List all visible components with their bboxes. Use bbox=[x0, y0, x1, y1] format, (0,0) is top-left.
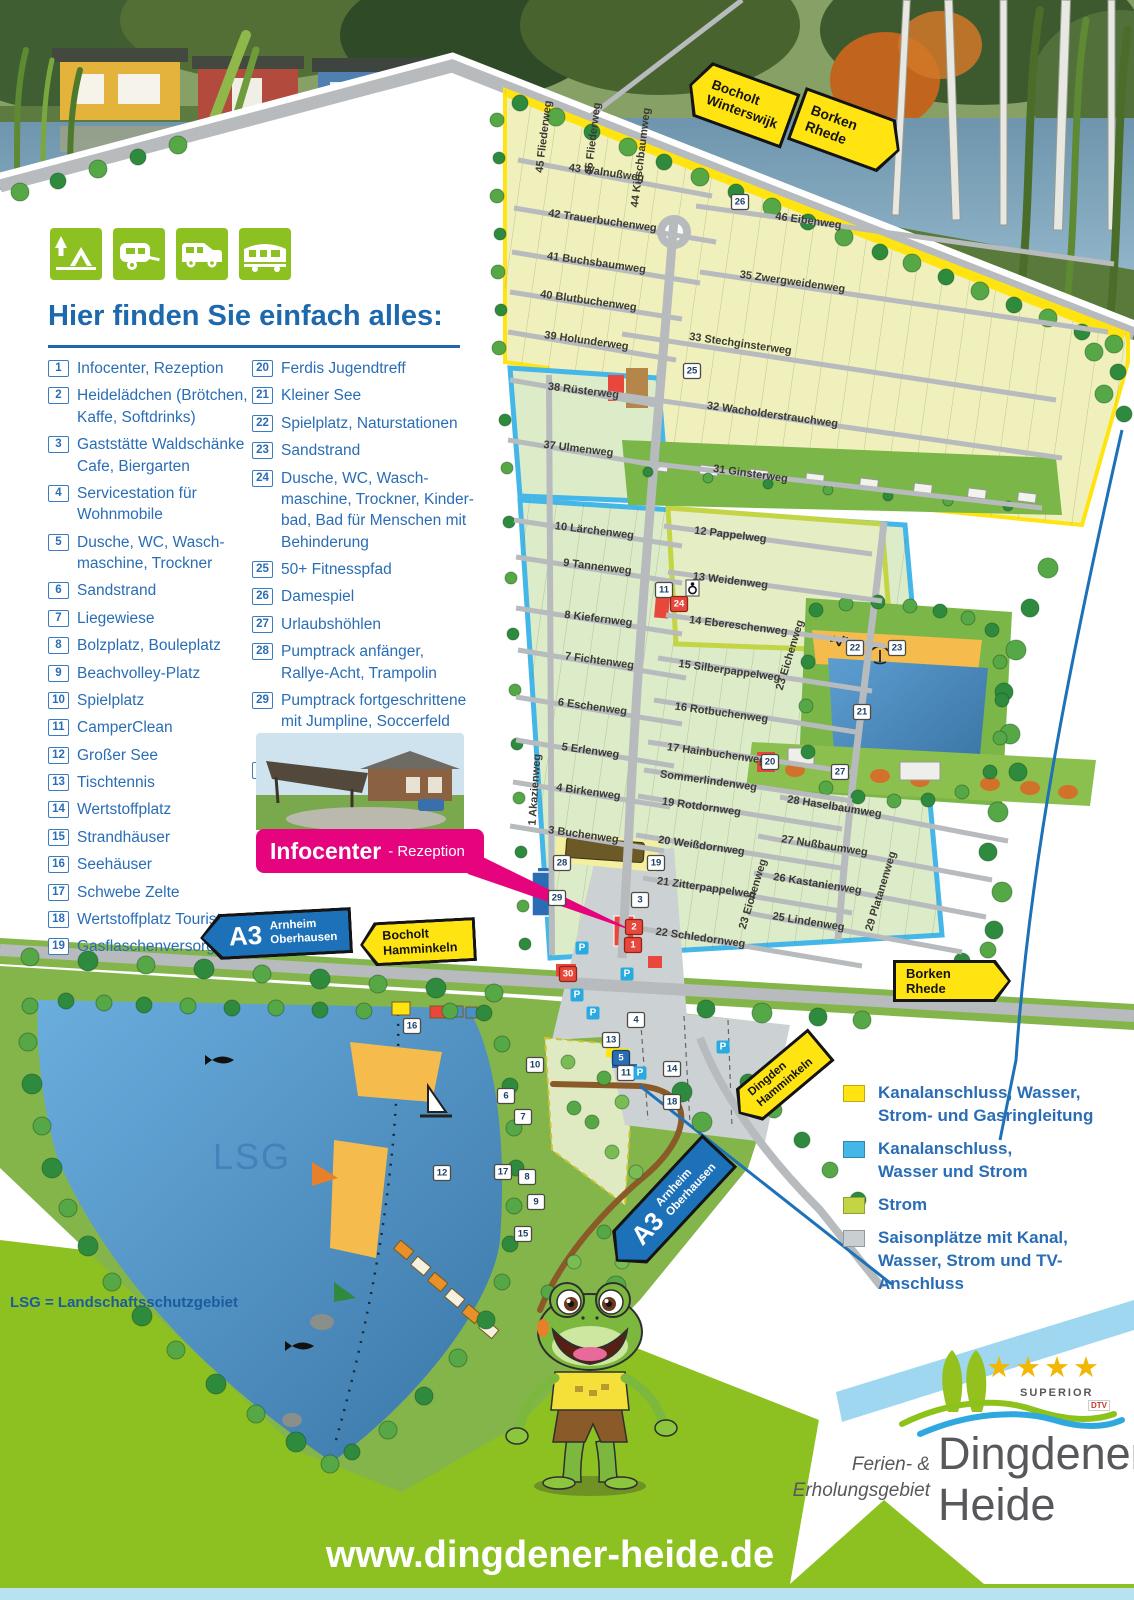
tree bbox=[629, 1165, 643, 1179]
legend-item-label: Damespiel bbox=[281, 586, 354, 607]
tree bbox=[379, 1421, 397, 1439]
tree bbox=[491, 265, 505, 279]
tree bbox=[1110, 364, 1126, 380]
legend-item-label: Ferdis Jugendtreff bbox=[281, 358, 406, 379]
tree bbox=[442, 1003, 458, 1019]
legend-item-number: 7 bbox=[48, 610, 69, 627]
tree bbox=[493, 152, 505, 164]
map-marker-17: 17 bbox=[495, 1165, 512, 1180]
legend-item-label: CamperClean bbox=[77, 717, 173, 738]
tree bbox=[485, 984, 503, 1002]
tree bbox=[505, 572, 517, 584]
tree bbox=[903, 599, 917, 613]
legend-item: 13Tischtennis bbox=[48, 772, 253, 793]
tree bbox=[509, 684, 521, 696]
tree bbox=[33, 1117, 51, 1135]
tree bbox=[494, 1036, 510, 1052]
tree bbox=[643, 467, 653, 477]
legend-item: 10Spielplatz bbox=[48, 690, 253, 711]
tree bbox=[286, 1432, 306, 1452]
legend-column-left: 1Infocenter, Rezeption2Heidelädchen (Brö… bbox=[48, 358, 253, 958]
map-marker-26: 26 bbox=[732, 195, 749, 210]
legend-item-label: Bolzplatz, Bouleplatz bbox=[77, 635, 221, 656]
legend-item-label: Dusche, WC, Wasch- maschine, Trockner bbox=[77, 532, 225, 575]
svg-text:P: P bbox=[624, 969, 631, 980]
legend-item-label: Schwebe Zelte bbox=[77, 882, 180, 903]
legend-item-label: Gaststätte Waldschänke Cafe, Biergarten bbox=[77, 434, 244, 477]
map-marker-11: 11 bbox=[618, 1066, 635, 1081]
infocenter-sublabel: - Rezeption bbox=[388, 843, 465, 860]
legend-item-label: Liegewiese bbox=[77, 608, 155, 629]
tree bbox=[597, 1071, 611, 1085]
logo-name-line1: Dingdener bbox=[938, 1428, 1134, 1480]
lake-lsg-label: LSG bbox=[213, 1136, 291, 1178]
parking-marker: P bbox=[717, 1041, 730, 1054]
tree bbox=[426, 978, 446, 998]
svg-text:5: 5 bbox=[618, 1053, 624, 1064]
map-marker-27: 27 bbox=[832, 765, 849, 780]
map-marker-12: 12 bbox=[434, 1166, 451, 1181]
tree bbox=[619, 138, 637, 156]
legend-item-number: 17 bbox=[48, 884, 69, 901]
tree bbox=[492, 341, 506, 355]
svg-text:19: 19 bbox=[651, 858, 662, 869]
infocenter-callout: Infocenter - Rezeption bbox=[256, 829, 484, 873]
legend-item: 26Damespiel bbox=[252, 586, 482, 607]
svg-text:P: P bbox=[590, 1008, 597, 1019]
legend-item-number: 15 bbox=[48, 829, 69, 846]
legend-item: 9Beachvolley-Platz bbox=[48, 663, 253, 684]
map-marker-11: 11 bbox=[656, 583, 673, 598]
svg-text:11: 11 bbox=[621, 1068, 632, 1079]
tree bbox=[567, 1101, 581, 1115]
tree bbox=[253, 965, 271, 983]
parking-marker: P bbox=[571, 989, 584, 1002]
legend-item-number: 2 bbox=[48, 387, 69, 404]
svg-text:10: 10 bbox=[530, 1060, 541, 1071]
tree bbox=[449, 1349, 467, 1367]
tree bbox=[96, 995, 112, 1011]
pitch-legend-label: Strom bbox=[878, 1194, 927, 1217]
svg-text:3: 3 bbox=[637, 895, 642, 906]
tree bbox=[356, 1003, 372, 1019]
legend-item-number: 3 bbox=[48, 436, 69, 453]
tree bbox=[903, 254, 921, 272]
pitch-type-legend: Kanalanschluss, Wasser, Strom- und Gasri… bbox=[843, 1082, 1134, 1296]
map-marker-25: 25 bbox=[684, 364, 701, 379]
legend-item-number: 10 bbox=[48, 692, 69, 709]
tree bbox=[512, 95, 528, 111]
tree bbox=[961, 611, 975, 625]
tree bbox=[605, 1145, 619, 1159]
tree bbox=[312, 1002, 328, 1018]
svg-text:29: 29 bbox=[552, 893, 563, 904]
tree bbox=[517, 900, 529, 912]
tree bbox=[519, 938, 531, 950]
tree bbox=[993, 655, 1007, 669]
tree bbox=[985, 623, 999, 637]
tree bbox=[50, 173, 66, 189]
tree bbox=[809, 603, 823, 617]
svg-text:26: 26 bbox=[735, 197, 746, 208]
tree bbox=[983, 765, 997, 779]
legend-item-number: 6 bbox=[48, 582, 69, 599]
tree bbox=[853, 1011, 871, 1029]
tree bbox=[1006, 640, 1026, 660]
tree bbox=[268, 1000, 284, 1016]
road-sign-a3-west: A3 ArnheimOberhausen bbox=[199, 907, 353, 961]
map-marker-29: 29 bbox=[549, 891, 566, 906]
parking-marker: P bbox=[621, 968, 634, 981]
tree bbox=[992, 882, 1012, 902]
tree bbox=[22, 998, 38, 1014]
legend-item: 27Urlaubshöhlen bbox=[252, 614, 482, 635]
map-marker-18: 18 bbox=[664, 1095, 681, 1110]
tree bbox=[415, 1387, 433, 1405]
legend-item-number: 28 bbox=[252, 643, 273, 660]
pitch-legend-label: Saisonplätze mit Kanal, Wasser, Strom un… bbox=[878, 1227, 1134, 1296]
tree bbox=[506, 1198, 522, 1214]
tree bbox=[1038, 558, 1058, 578]
svg-text:12: 12 bbox=[437, 1168, 448, 1179]
tree bbox=[794, 1132, 810, 1148]
legend-item-number: 26 bbox=[252, 588, 273, 605]
legend-item: 28Pumptrack anfänger, Rallye-Acht, Tramp… bbox=[252, 641, 482, 684]
legend-item-number: 13 bbox=[48, 774, 69, 791]
legend-item-number: 19 bbox=[48, 938, 69, 955]
legend-item-label: Spielplatz, Naturstationen bbox=[281, 413, 458, 434]
pitch-legend-label: Kanalanschluss, Wasser und Strom bbox=[878, 1138, 1028, 1184]
tree bbox=[59, 1199, 77, 1217]
tree bbox=[921, 793, 935, 807]
logo-stars: ★★★★ bbox=[986, 1350, 1102, 1385]
map-marker-23: 23 bbox=[889, 641, 906, 656]
pitch-legend-swatch bbox=[843, 1141, 865, 1158]
tree bbox=[501, 462, 513, 474]
svg-text:7: 7 bbox=[520, 1112, 525, 1123]
legend-item-label: Beachvolley-Platz bbox=[77, 663, 200, 684]
tree bbox=[490, 113, 504, 127]
tree bbox=[752, 1003, 772, 1023]
tree bbox=[801, 655, 815, 669]
pitch-legend-item: Kanalanschluss, Wasser, Strom- und Gasri… bbox=[843, 1082, 1134, 1128]
legend-item-label: Sandstrand bbox=[281, 440, 360, 461]
legend-item: 1Infocenter, Rezeption bbox=[48, 358, 253, 379]
legend-divider bbox=[48, 345, 460, 348]
legend-title: Hier finden Sie einfach alles: bbox=[48, 300, 478, 333]
map-marker-28: 28 bbox=[554, 856, 571, 871]
legend-item: 21Kleiner See bbox=[252, 385, 482, 406]
tree bbox=[247, 1405, 265, 1423]
tree bbox=[692, 1112, 712, 1132]
tree bbox=[691, 168, 709, 186]
tree bbox=[1085, 343, 1103, 361]
legend-item: 22Spielplatz, Naturstationen bbox=[252, 413, 482, 434]
map-marker-20: 20 bbox=[762, 755, 779, 770]
tree bbox=[321, 1455, 339, 1473]
pitch-legend-swatch bbox=[843, 1197, 865, 1214]
parking-marker: P bbox=[587, 1007, 600, 1020]
tree bbox=[477, 1311, 495, 1329]
tree bbox=[1105, 335, 1123, 353]
wheelchair-icon bbox=[686, 580, 699, 596]
legend-item: 20Ferdis Jugendtreff bbox=[252, 358, 482, 379]
legend-item-number: 1 bbox=[48, 360, 69, 377]
legend-item-label: Dusche, WC, Wasch- maschine, Trockner, K… bbox=[281, 468, 474, 554]
tree bbox=[490, 189, 504, 203]
tree bbox=[851, 790, 865, 804]
svg-text:20: 20 bbox=[765, 757, 776, 768]
legend-item: 11CamperClean bbox=[48, 717, 253, 738]
legend-item-number: 20 bbox=[252, 360, 273, 377]
legend-item-number: 5 bbox=[48, 534, 69, 551]
legend-item-number: 12 bbox=[48, 747, 69, 764]
campsite-map-poster: 45 Fliederweg45 Fliederweg44 Kirschbaumw… bbox=[0, 0, 1134, 1600]
tree bbox=[344, 1444, 360, 1460]
tree bbox=[809, 1008, 827, 1026]
tree bbox=[1009, 763, 1027, 781]
legend-item-number: 8 bbox=[48, 637, 69, 654]
accommodation-icons bbox=[50, 228, 291, 280]
url-banner[interactable]: www.dingdener-heide.de bbox=[0, 1534, 1100, 1577]
map-marker-19: 19 bbox=[648, 856, 665, 871]
road-sign-bocholt-hamminkeln: BocholtHamminkeln bbox=[359, 917, 477, 967]
parking-marker: P bbox=[576, 942, 589, 955]
legend-item: 24Dusche, WC, Wasch- maschine, Trockner,… bbox=[252, 468, 482, 554]
svg-text:18: 18 bbox=[667, 1097, 678, 1108]
tree bbox=[1116, 406, 1132, 422]
svg-text:P: P bbox=[720, 1042, 727, 1053]
map-marker-1: 1 bbox=[625, 938, 642, 953]
map-marker-7: 7 bbox=[515, 1110, 532, 1125]
tree bbox=[1006, 297, 1022, 313]
footer-strip bbox=[0, 1588, 1134, 1600]
legend-item-number: 29 bbox=[252, 692, 273, 709]
tree bbox=[933, 604, 947, 618]
map-marker-15: 15 bbox=[515, 1227, 532, 1242]
legend-item-number: 22 bbox=[252, 415, 273, 432]
legend-item-number: 25 bbox=[252, 561, 273, 578]
tree bbox=[58, 993, 74, 1009]
svg-text:27: 27 bbox=[835, 767, 846, 778]
map-marker-22: 22 bbox=[847, 641, 864, 656]
tree bbox=[819, 781, 833, 795]
svg-text:16: 16 bbox=[407, 1021, 418, 1032]
map-marker-2: 2 bbox=[626, 920, 643, 935]
legend-item-label: Strandhäuser bbox=[77, 827, 170, 848]
tree bbox=[369, 975, 387, 993]
tree bbox=[310, 969, 330, 989]
legend-item-label: Spielplatz bbox=[77, 690, 144, 711]
legend-item-number: 4 bbox=[48, 485, 69, 502]
tree bbox=[494, 1274, 510, 1290]
legend-item: 16Seehäuser bbox=[48, 854, 253, 875]
map-marker-9: 9 bbox=[528, 1195, 545, 1210]
tree bbox=[995, 693, 1009, 707]
legend-item: 23Sandstrand bbox=[252, 440, 482, 461]
tree bbox=[513, 792, 525, 804]
logo-name-line2: Heide bbox=[938, 1479, 1056, 1531]
tree bbox=[136, 997, 152, 1013]
legend-item: 17Schwebe Zelte bbox=[48, 882, 253, 903]
svg-text:15: 15 bbox=[518, 1229, 529, 1240]
svg-text:P: P bbox=[637, 1068, 644, 1079]
tree bbox=[988, 802, 1008, 822]
map-marker-5: 5 bbox=[613, 1051, 630, 1066]
legend-item: 5Dusche, WC, Wasch- maschine, Trockner bbox=[48, 532, 253, 575]
svg-text:8: 8 bbox=[524, 1172, 529, 1183]
tree bbox=[224, 1000, 240, 1016]
svg-text:P: P bbox=[574, 990, 581, 1001]
svg-text:2: 2 bbox=[631, 922, 636, 933]
map-marker-30: 30 bbox=[560, 967, 577, 982]
tree bbox=[194, 959, 214, 979]
parking-marker: P bbox=[634, 1067, 647, 1080]
tree bbox=[567, 1255, 581, 1269]
map-marker-3: 3 bbox=[632, 893, 649, 908]
tree bbox=[561, 1055, 575, 1069]
tree bbox=[499, 414, 511, 426]
tree bbox=[801, 745, 815, 759]
tree bbox=[971, 282, 989, 300]
legend-item-number: 24 bbox=[252, 470, 273, 487]
svg-text:14: 14 bbox=[667, 1064, 678, 1075]
svg-text:23: 23 bbox=[892, 643, 903, 654]
svg-text:13: 13 bbox=[606, 1035, 617, 1046]
legend-item: 3Gaststätte Waldschänke Cafe, Biergarten bbox=[48, 434, 253, 477]
tree bbox=[137, 956, 155, 974]
lsg-note: LSG = Landschaftsschutzgebiet bbox=[10, 1294, 238, 1311]
tree bbox=[515, 846, 527, 858]
camping-tent-icon bbox=[50, 228, 102, 280]
map-marker-21: 21 bbox=[854, 705, 871, 720]
tree bbox=[872, 244, 888, 260]
tree bbox=[169, 136, 187, 154]
tree bbox=[476, 1005, 492, 1021]
legend-item-label: Kleiner See bbox=[281, 385, 361, 406]
tree bbox=[585, 1115, 599, 1129]
map-marker-13: 13 bbox=[603, 1033, 620, 1048]
legend-item-number: 18 bbox=[48, 911, 69, 928]
legend-column-right: 20Ferdis Jugendtreff21Kleiner See22Spiel… bbox=[252, 358, 482, 781]
tree bbox=[103, 1273, 121, 1291]
tree bbox=[979, 843, 997, 861]
tree bbox=[494, 228, 506, 240]
legend-item-label: Urlaubshöhlen bbox=[281, 614, 381, 635]
tree bbox=[887, 794, 901, 808]
tree bbox=[180, 998, 196, 1014]
legend-item-label: Infocenter, Rezeption bbox=[77, 358, 224, 379]
road-sign-borken-rhede-bottom: BorkenRhede bbox=[893, 960, 1011, 1002]
legend-item-label: Servicestation für Wohnmobile bbox=[77, 483, 197, 526]
tree bbox=[1021, 599, 1039, 617]
map-marker-16: 16 bbox=[404, 1019, 421, 1034]
legend-item-number: 9 bbox=[48, 665, 69, 682]
tree bbox=[78, 1236, 98, 1256]
svg-text:21: 21 bbox=[857, 707, 868, 718]
legend-item-number: 11 bbox=[48, 719, 69, 736]
tree bbox=[955, 785, 969, 799]
pitch-legend-label: Kanalanschluss, Wasser, Strom- und Gasri… bbox=[878, 1082, 1093, 1128]
svg-text:28: 28 bbox=[557, 858, 568, 869]
tree bbox=[19, 1033, 37, 1051]
svg-text:25: 25 bbox=[687, 366, 698, 377]
legend-item-label: Pumptrack anfänger, Rallye-Acht, Trampol… bbox=[281, 641, 437, 684]
svg-text:6: 6 bbox=[503, 1091, 508, 1102]
legend-item-label: Sandstrand bbox=[77, 580, 156, 601]
svg-text:24: 24 bbox=[674, 599, 685, 610]
map-marker-8: 8 bbox=[519, 1170, 536, 1185]
tree bbox=[507, 628, 519, 640]
map-marker-4: 4 bbox=[628, 1013, 645, 1028]
tree bbox=[21, 948, 39, 966]
legend-item-number: 23 bbox=[252, 442, 273, 459]
mobile-home-icon bbox=[239, 228, 291, 280]
legend-item-number: 27 bbox=[252, 616, 273, 633]
pitch-legend-item: Kanalanschluss, Wasser und Strom bbox=[843, 1138, 1134, 1184]
legend-item-label: Tischtennis bbox=[77, 772, 155, 793]
legend-item: 15Strandhäuser bbox=[48, 827, 253, 848]
map-marker-10: 10 bbox=[527, 1058, 544, 1073]
svg-text:11: 11 bbox=[659, 585, 670, 596]
svg-text:1: 1 bbox=[630, 940, 636, 951]
legend-item-label: Heidelädchen (Brötchen, Kaffe, Softdrink… bbox=[77, 385, 248, 428]
tree bbox=[495, 304, 507, 316]
legend-item-number: 16 bbox=[48, 856, 69, 873]
tree bbox=[167, 1341, 185, 1359]
legend-item-label: Großer See bbox=[77, 745, 158, 766]
tree bbox=[985, 921, 1003, 939]
caravan-icon bbox=[113, 228, 165, 280]
motorhome-icon bbox=[176, 228, 228, 280]
tree bbox=[1095, 385, 1113, 403]
pitch-legend-item: Saisonplätze mit Kanal, Wasser, Strom un… bbox=[843, 1227, 1134, 1296]
tree bbox=[89, 160, 107, 178]
svg-text:9: 9 bbox=[533, 1197, 538, 1208]
svg-text:30: 30 bbox=[563, 969, 574, 980]
legend-item: 12Großer See bbox=[48, 745, 253, 766]
legend-item-label: 50+ Fitnesspfad bbox=[281, 559, 392, 580]
legend-item: 7Liegewiese bbox=[48, 608, 253, 629]
map-marker-24: 24 bbox=[671, 597, 688, 612]
tree bbox=[42, 1158, 62, 1178]
infocenter-photo bbox=[256, 733, 464, 830]
infocenter-label: Infocenter bbox=[270, 838, 381, 865]
legend-item-number: 21 bbox=[252, 387, 273, 404]
tree bbox=[697, 1000, 715, 1018]
svg-text:22: 22 bbox=[850, 643, 861, 654]
tree bbox=[615, 1095, 629, 1109]
legend-item: 2Heidelädchen (Brötchen, Kaffe, Softdrin… bbox=[48, 385, 253, 428]
svg-text:P: P bbox=[579, 943, 586, 954]
tree bbox=[11, 183, 29, 201]
legend-item-label: Wertstoffplatz bbox=[77, 799, 171, 820]
pitch-legend-swatch bbox=[843, 1085, 865, 1102]
legend-item: 2550+ Fitnesspfad bbox=[252, 559, 482, 580]
logo-tagline: Ferien- & Erholungsgebiet bbox=[762, 1452, 930, 1503]
pitch-legend-item: Strom bbox=[843, 1194, 1134, 1217]
pitch-legend-swatch bbox=[843, 1230, 865, 1247]
tree bbox=[822, 1162, 838, 1178]
legend-item-label: Seehäuser bbox=[77, 854, 152, 875]
legend-item: 6Sandstrand bbox=[48, 580, 253, 601]
tree bbox=[206, 1374, 226, 1394]
tree bbox=[503, 516, 515, 528]
tree bbox=[799, 699, 813, 713]
tree bbox=[656, 154, 672, 170]
map-marker-14: 14 bbox=[664, 1062, 681, 1077]
legend-item: 4Servicestation für Wohnmobile bbox=[48, 483, 253, 526]
